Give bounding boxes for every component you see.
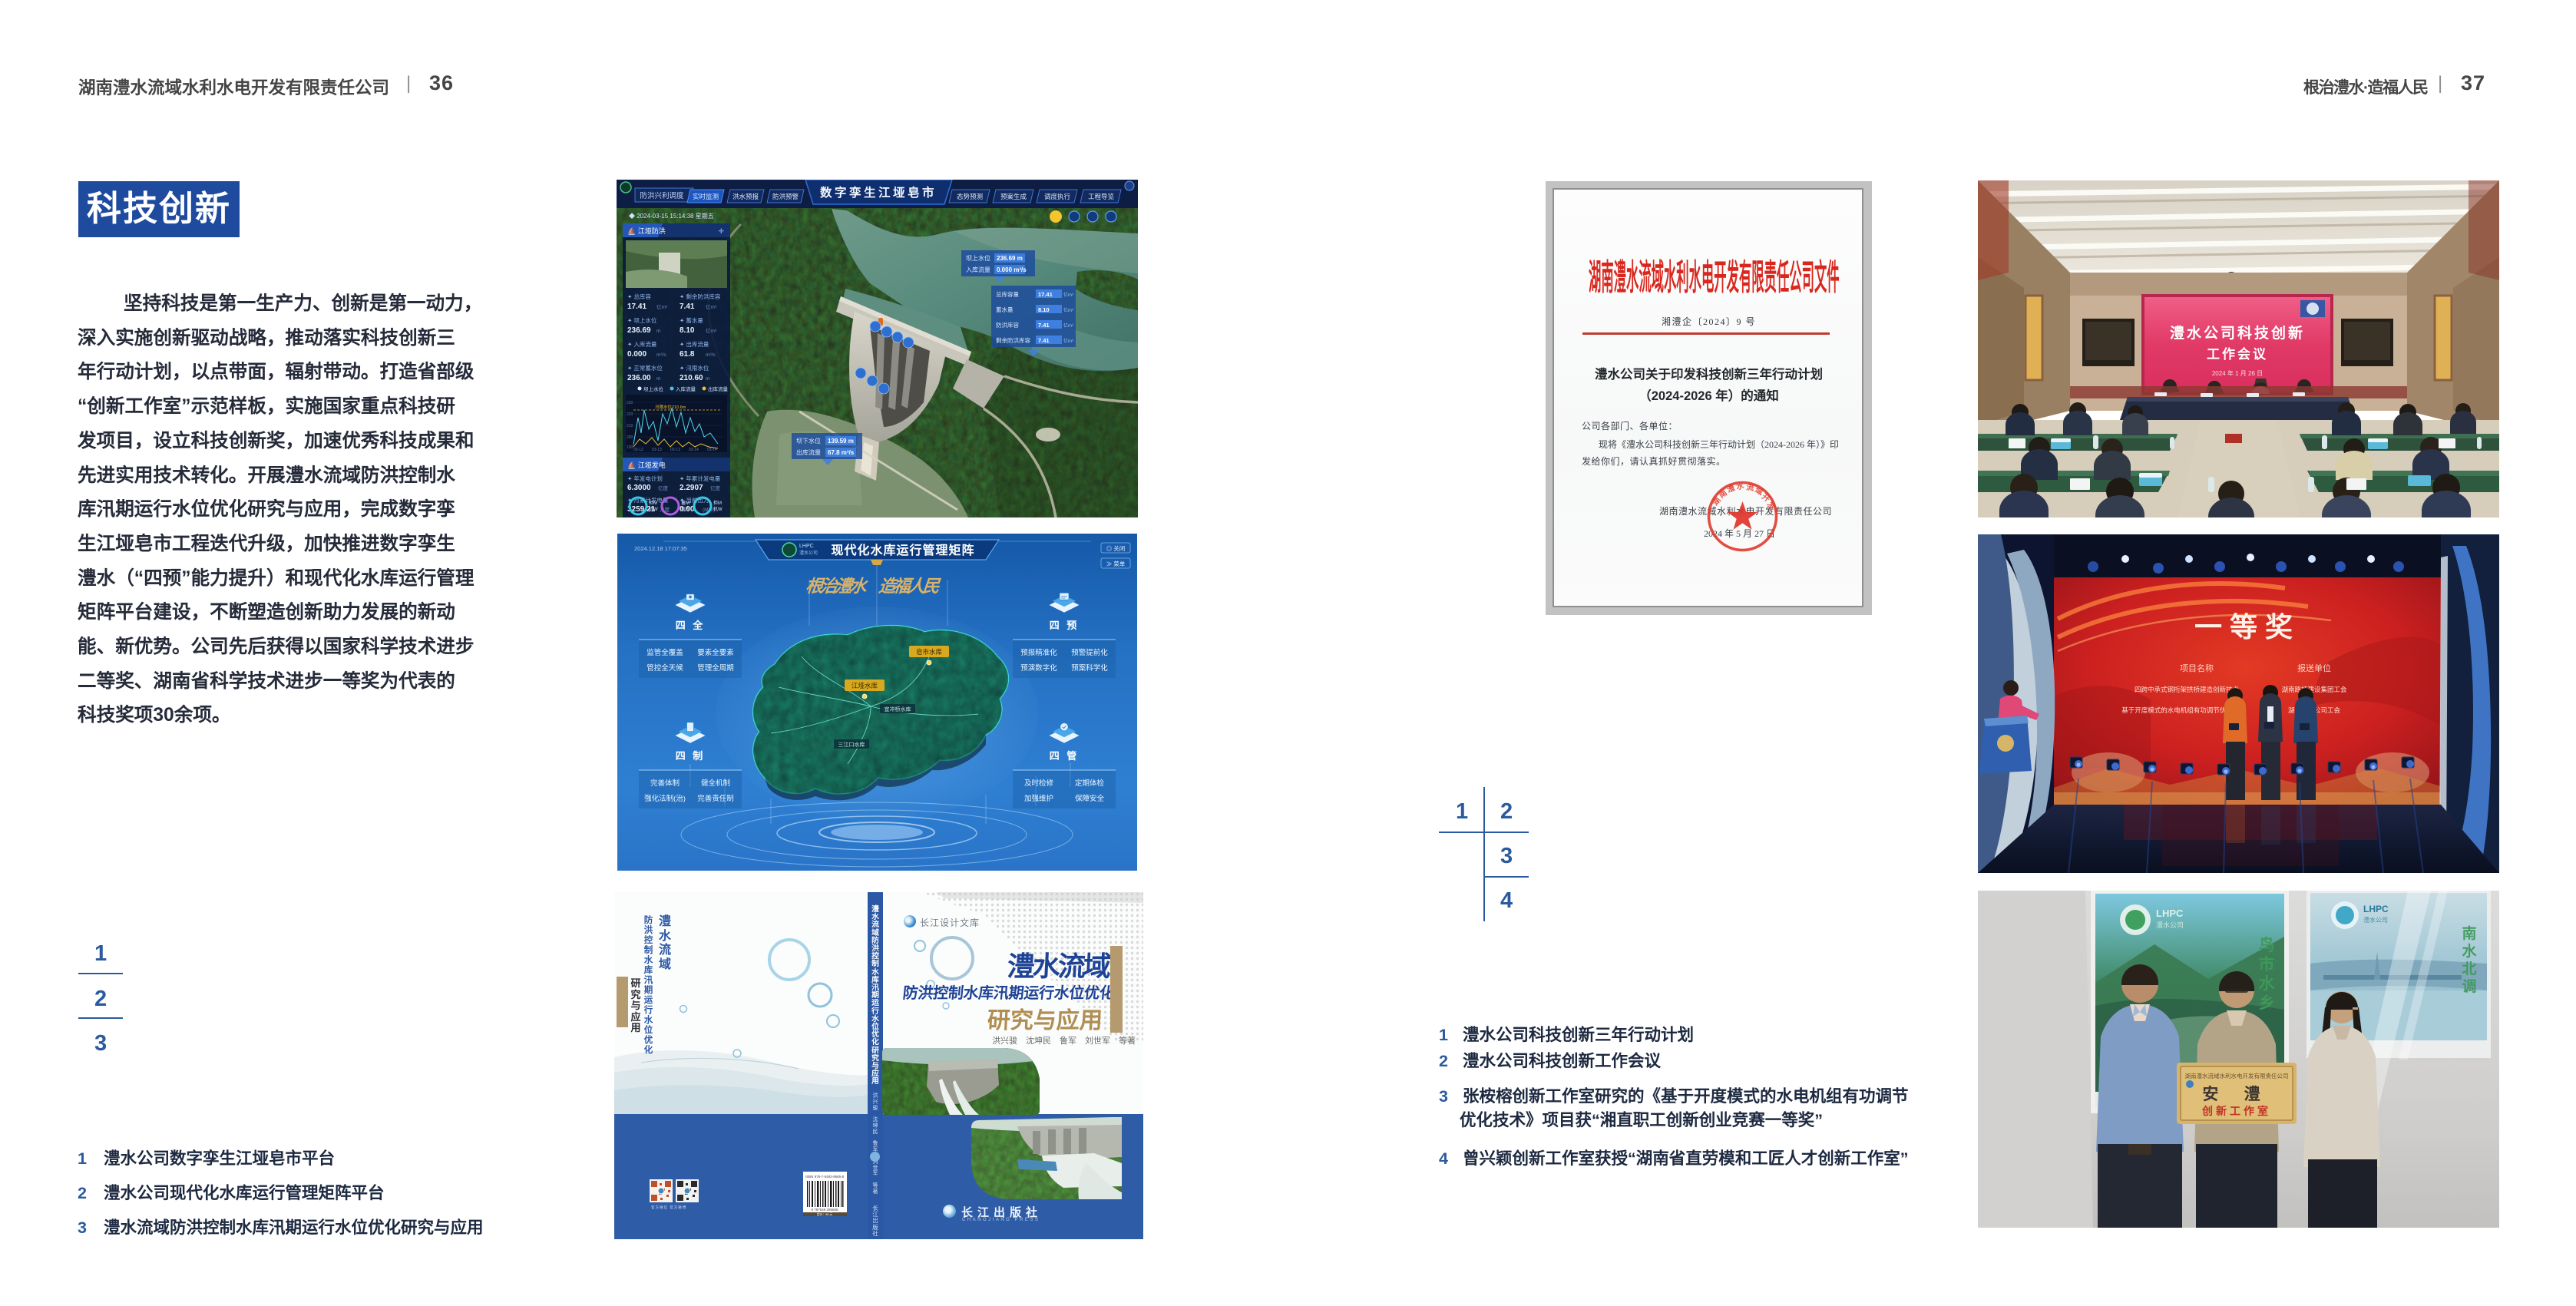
svg-text:0.000: 0.000: [627, 350, 646, 359]
svg-text:澧水公司: 澧水公司: [799, 550, 818, 556]
svg-text:210: 210: [627, 424, 633, 428]
svg-text:一等奖: 一等奖: [2194, 612, 2300, 643]
svg-text:宜冲桥水库: 宜冲桥水库: [885, 706, 911, 713]
svg-text:防洪库容: 防洪库容: [996, 321, 1019, 329]
svg-text:四 预: 四 预: [1050, 620, 1080, 631]
svg-text:四跨中承式钢桁架拱桥建造创新技术: 四跨中承式钢桁架拱桥建造创新技术: [2135, 686, 2240, 693]
svg-text:坝下水位: 坝下水位: [796, 437, 821, 445]
svg-text:预案科学化: 预案科学化: [1071, 663, 1108, 673]
svg-text:m: m: [656, 376, 660, 382]
svg-text:蓄水量: 蓄水量: [996, 306, 1014, 313]
svg-text:✦ 入库流量: ✦ 入库流量: [627, 340, 657, 348]
svg-text:03-13: 03-13: [670, 448, 680, 452]
svg-text:澧水公司: 澧水公司: [2156, 921, 2184, 929]
svg-text:LHPC: LHPC: [2363, 904, 2389, 914]
svg-text:预演数字化: 预演数字化: [1020, 663, 1057, 673]
svg-text:机W: 机W: [713, 506, 723, 512]
svg-text:安 澧: 安 澧: [2202, 1085, 2270, 1103]
svg-text:入库流量: 入库流量: [676, 385, 696, 392]
svg-text:≫ 菜单: ≫ 菜单: [1106, 560, 1126, 567]
svg-text:蓄M: 蓄M: [681, 500, 689, 506]
svg-text:⛵ 江垭防洪: ⛵ 江垭防洪: [627, 226, 666, 235]
svg-text:LHPC: LHPC: [2156, 908, 2184, 919]
svg-text:✦ 汛限水位: ✦ 汛限水位: [680, 364, 709, 372]
svg-text:亿m³: 亿m³: [706, 303, 717, 310]
svg-text:出库流量: 出库流量: [708, 385, 729, 392]
svg-text:亿度: 亿度: [658, 484, 669, 491]
svg-text:工程导览: 工程导览: [1088, 193, 1114, 200]
svg-text:根治澧水 造福人民: 根治澧水 造福人民: [805, 577, 941, 596]
svg-text:预报精准化: 预报精准化: [1020, 648, 1057, 657]
svg-text:亿m³: 亿m³: [656, 303, 668, 310]
svg-text:保障安全: 保障安全: [1075, 794, 1105, 803]
svg-text:03-14: 03-14: [689, 448, 699, 452]
svg-text:四 管: 四 管: [1050, 750, 1080, 762]
svg-text:139.59 m: 139.59 m: [828, 438, 854, 445]
svg-text:210.60: 210.60: [680, 374, 703, 382]
svg-text:要素全要素: 要素全要素: [697, 648, 734, 657]
svg-text:✦ 坝上水位: ✦ 坝上水位: [627, 316, 657, 324]
svg-text:乡: 乡: [2259, 994, 2275, 1012]
svg-text:2.2907: 2.2907: [680, 484, 703, 492]
svg-text:17.41: 17.41: [627, 303, 646, 311]
svg-text:出库流量: 出库流量: [796, 448, 821, 456]
svg-text:汛限水位210.6m: 汛限水位210.6m: [655, 404, 686, 410]
svg-text:亿m³: 亿m³: [706, 327, 717, 334]
svg-text:三江口水库: 三江口水库: [838, 741, 865, 748]
svg-text:230: 230: [627, 401, 633, 405]
svg-text:⛵ 江垭发电: ⛵ 江垭发电: [627, 461, 666, 469]
svg-text:03-13: 03-13: [652, 448, 662, 452]
svg-text:总库容量: 总库容量: [996, 290, 1019, 298]
svg-text:入库流量: 入库流量: [966, 266, 990, 273]
svg-text:8.10: 8.10: [680, 326, 695, 335]
svg-text:强化法制(治): 强化法制(治): [644, 794, 686, 803]
svg-text:调度执行: 调度执行: [1044, 193, 1071, 200]
svg-text:200: 200: [627, 435, 633, 440]
svg-text:市: 市: [2259, 955, 2275, 974]
svg-text:7.41: 7.41: [1038, 322, 1050, 329]
svg-text:担M: 担M: [649, 500, 657, 506]
svg-text:四 全: 四 全: [676, 620, 706, 631]
svg-text:m³/s: m³/s: [706, 352, 716, 358]
svg-text:工作会议: 工作会议: [2207, 346, 2268, 362]
svg-text:实时监测: 实时监测: [693, 193, 719, 200]
svg-text:亿度: 亿度: [710, 484, 721, 491]
svg-text:◆ 2024-03-15 15:14:38 星期五: ◆ 2024-03-15 15:14:38 星期五: [629, 213, 714, 220]
svg-text:67.8 m³/s: 67.8 m³/s: [828, 449, 855, 456]
svg-text:亿m³: 亿m³: [1063, 338, 1073, 344]
svg-text:水: 水: [2259, 974, 2276, 993]
svg-text:调: 调: [2462, 978, 2476, 995]
svg-text:定价：98 元: 定价：98 元: [817, 1212, 833, 1216]
svg-text:ISBN 978-7-5492-9565-8: ISBN 978-7-5492-9565-8: [805, 1175, 845, 1179]
svg-text:官方微信 官方微博: 官方微信 官方微博: [651, 1205, 686, 1210]
svg-text:m: m: [656, 329, 660, 334]
svg-text:坝上水位: 坝上水位: [643, 385, 664, 392]
svg-text:9 787549 295658: 9 787549 295658: [811, 1208, 838, 1212]
svg-text:创新工作室: 创新工作室: [2201, 1105, 2271, 1118]
svg-text:✦ 蓄水量: ✦ 蓄水量: [680, 316, 703, 324]
svg-text:管理全周期: 管理全周期: [697, 663, 734, 673]
svg-text:水: 水: [2462, 943, 2477, 960]
svg-text:健全机制: 健全机制: [701, 779, 730, 788]
svg-text:防洪预警: 防洪预警: [772, 193, 799, 200]
svg-text:6.3000: 6.3000: [627, 484, 651, 492]
svg-text:7.41: 7.41: [680, 303, 695, 311]
svg-text:洪水预报: 洪水预报: [732, 193, 759, 200]
svg-text:236.69 m: 236.69 m: [997, 255, 1023, 262]
svg-text:定期体检: 定期体检: [1075, 779, 1105, 788]
svg-text:剩余防洪库容: 剩余防洪库容: [996, 336, 1030, 344]
svg-text:220: 220: [627, 412, 633, 417]
svg-text:监管全覆盖: 监管全覆盖: [646, 648, 683, 657]
svg-text:南: 南: [2462, 925, 2476, 942]
svg-text:亿m³: 亿m³: [1063, 292, 1073, 298]
svg-text:态势预测: 态势预测: [957, 193, 983, 200]
svg-text:61.8: 61.8: [680, 350, 695, 359]
svg-text:防洪兴利调度: 防洪兴利调度: [640, 191, 684, 200]
svg-text:加强维护: 加强维护: [1024, 794, 1053, 803]
svg-text:湖南澧水流域水利水电开发有限责任公司: 湖南澧水流域水利水电开发有限责任公司: [2185, 1072, 2289, 1080]
svg-text:数字孪生江垭皂市: 数字孪生江垭皂市: [820, 185, 937, 200]
svg-text:17.41: 17.41: [1038, 291, 1053, 298]
svg-text:完善体制: 完善体制: [650, 779, 680, 788]
svg-text:✛: ✛: [718, 227, 724, 235]
svg-text:03-12: 03-12: [633, 448, 643, 452]
svg-text:236.00: 236.00: [627, 374, 651, 382]
svg-text:电W: 电W: [681, 506, 690, 512]
svg-text:预警提前化: 预警提前化: [1071, 648, 1108, 657]
svg-text:✦ 出库流量: ✦ 出库流量: [680, 340, 709, 348]
svg-text:四 制: 四 制: [676, 750, 706, 762]
svg-text:湖南路桥建设集团工会: 湖南路桥建设集团工会: [2281, 686, 2347, 693]
svg-text:亿m³: 亿m³: [1063, 307, 1073, 313]
svg-text:鸟: 鸟: [2259, 936, 2275, 954]
svg-text:澧水公司科技创新: 澧水公司科技创新: [2170, 324, 2305, 342]
svg-text:LHPC: LHPC: [799, 544, 814, 549]
svg-text:✦ 年发电计划: ✦ 年发电计划: [627, 474, 663, 482]
svg-text:m³/s: m³/s: [656, 352, 666, 358]
svg-text:✦ 剩余防洪库容: ✦ 剩余防洪库容: [680, 293, 721, 300]
svg-text:坝上水位: 坝上水位: [966, 254, 990, 262]
svg-text:完善责任制: 完善责任制: [697, 794, 734, 803]
svg-text:项目名称: 项目名称: [2180, 663, 2214, 673]
svg-text:0.000 m³/s: 0.000 m³/s: [997, 266, 1027, 273]
svg-text:担M: 担M: [713, 500, 722, 506]
svg-text:2024.12.18 17:07:35: 2024.12.18 17:07:35: [634, 545, 687, 552]
svg-text:江垭水库: 江垭水库: [852, 682, 878, 689]
svg-text:236.69: 236.69: [627, 326, 651, 335]
svg-text:及时检修: 及时检修: [1024, 779, 1054, 788]
svg-text:现代化水库运行管理矩阵: 现代化水库运行管理矩阵: [831, 543, 974, 557]
svg-text:北: 北: [2462, 960, 2476, 977]
svg-text:✦ 总库容: ✦ 总库容: [627, 293, 651, 300]
svg-text:◎ 关闭: ◎ 关闭: [1106, 544, 1126, 552]
svg-text:亿m³: 亿m³: [1063, 322, 1073, 329]
svg-text:机W: 机W: [649, 506, 658, 512]
svg-text:m: m: [706, 376, 709, 382]
svg-text:✦ 正常蓄水位: ✦ 正常蓄水位: [627, 364, 663, 372]
svg-text:8.10: 8.10: [1038, 306, 1050, 313]
svg-text:✦ 年累计发电量: ✦ 年累计发电量: [680, 474, 721, 482]
svg-text:皂市水库: 皂市水库: [916, 648, 943, 656]
svg-text:管控全天候: 管控全天候: [646, 663, 683, 673]
svg-text:澧水公司: 澧水公司: [2363, 916, 2388, 924]
svg-text:预案生成: 预案生成: [1000, 193, 1027, 200]
svg-text:报送单位: 报送单位: [2297, 663, 2331, 673]
svg-text:190: 190: [627, 445, 633, 450]
svg-text:7.41: 7.41: [1038, 337, 1050, 344]
svg-text:2024 年 1 月 26 日: 2024 年 1 月 26 日: [2212, 369, 2263, 377]
